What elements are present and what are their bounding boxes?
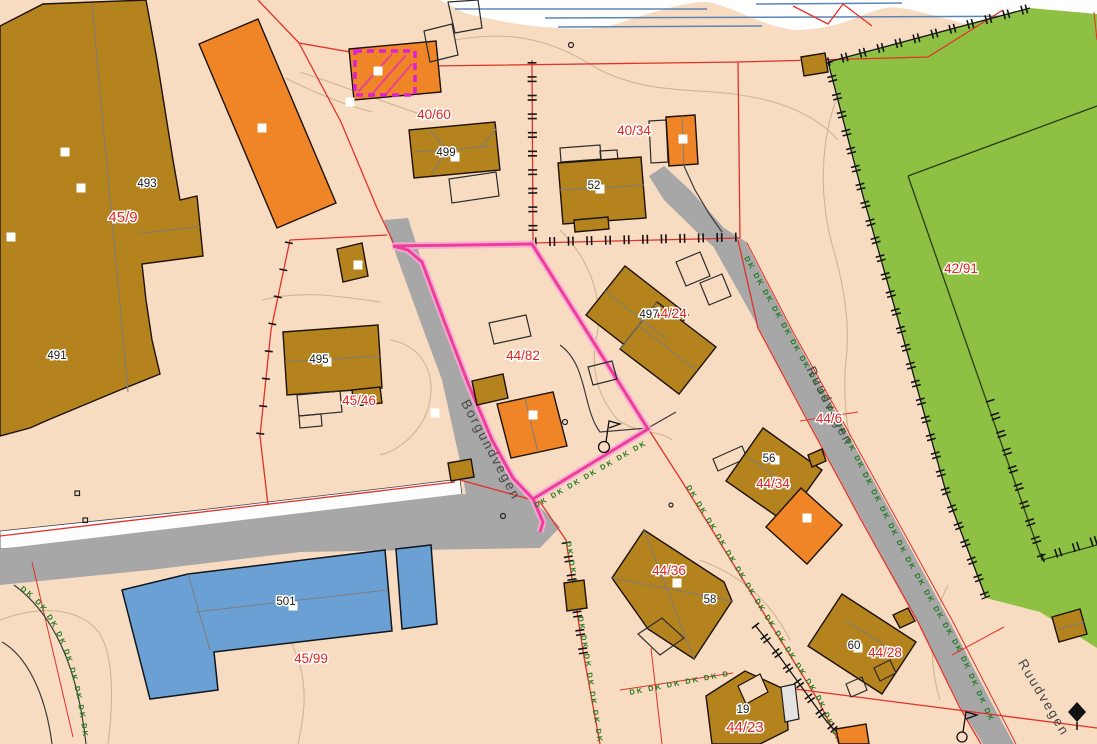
building-label-56: 56 [763, 453, 776, 465]
building-label-495: 495 [309, 354, 328, 366]
building-label-499: 499 [436, 147, 455, 159]
cadastral-map-canvas[interactable]: DK DK DK DK DK DK DK DK DK DK DK DK DK D… [0, 0, 1097, 744]
parcel-label-45-46[interactable]: 45/46 [342, 393, 376, 408]
parcel-label-44-34[interactable]: 44/34 [756, 476, 790, 491]
parcel-label-45-9[interactable]: 45/9 [108, 209, 137, 226]
parcel-label-44-28[interactable]: 44/28 [868, 645, 902, 660]
building-label-19: 19 [737, 704, 750, 716]
parcel-label-44-36[interactable]: 44/36 [652, 563, 686, 578]
map-viewport[interactable]: DK DK DK DK DK DK DK DK DK DK DK DK DK D… [0, 0, 1097, 744]
parcel-label-40-60[interactable]: 40/60 [417, 107, 451, 122]
parcel-label-40-34[interactable]: 40/34 [617, 123, 651, 138]
building-hut[interactable] [337, 243, 368, 282]
parcel-label-45-99[interactable]: 45/99 [294, 651, 328, 666]
building-label-60: 60 [848, 640, 861, 652]
building-label-52: 52 [588, 180, 601, 192]
parcel-label-44-23[interactable]: 44/23 [726, 719, 764, 736]
building-label-491: 491 [47, 350, 66, 362]
building-label-501: 501 [276, 596, 295, 608]
parcel-label-44-82[interactable]: 44/82 [506, 348, 540, 363]
building-label-493: 493 [137, 178, 156, 190]
parcel-label-44-6[interactable]: 44/6 [816, 411, 842, 426]
building-shed[interactable] [564, 580, 587, 611]
parcel-label-42-91[interactable]: 42/91 [944, 261, 978, 276]
building-field-shed-nw[interactable] [801, 53, 828, 76]
building-shed[interactable] [448, 459, 474, 481]
building-label-497: 497 [639, 309, 658, 321]
building-label-58: 58 [704, 594, 717, 606]
